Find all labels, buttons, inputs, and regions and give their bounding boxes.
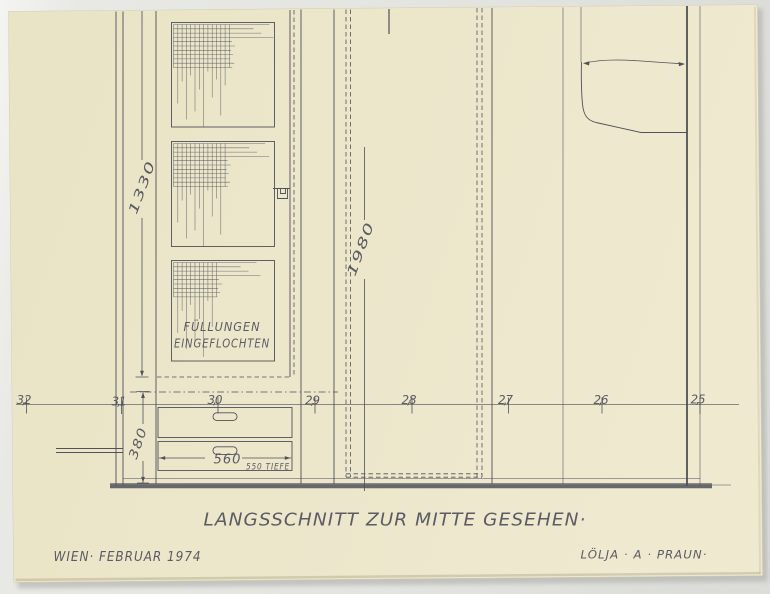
paper-group bbox=[8, 5, 767, 589]
axis-label-2-5: 2,5 bbox=[691, 393, 707, 407]
axis-label-3-2: 3,2 bbox=[17, 393, 33, 407]
axis-label-3-1: 3,1 bbox=[112, 395, 128, 409]
depth-note-label: 550 TIEFE bbox=[246, 463, 290, 473]
axis-label-2-7: 2,7 bbox=[498, 393, 514, 407]
paper-sheet bbox=[8, 5, 762, 583]
axis-label-2-8: 2,8 bbox=[402, 393, 418, 407]
scan-background: 1330 1980 380 560 550 TIEFE FÜLLUNGEN EI… bbox=[0, 0, 770, 594]
axis-label-2-6: 2,6 bbox=[594, 393, 610, 407]
place-date: WIEN· FEBRUAR 1974 bbox=[54, 550, 202, 565]
dimension-label-560: 560 bbox=[214, 453, 242, 468]
axis-label-3-0: 3,0 bbox=[208, 393, 224, 407]
signature: LÖLJA · A · PRAUN· bbox=[581, 546, 708, 562]
panel-note-line1: FÜLLUNGEN bbox=[184, 318, 261, 334]
panel-note-line2: EINGEFLOCHTEN bbox=[174, 337, 270, 351]
axis-label-2-9: 2,9 bbox=[305, 394, 321, 408]
drawing-sheet-svg: 1330 1980 380 560 550 TIEFE FÜLLUNGEN EI… bbox=[0, 0, 770, 594]
drawing-title: LANGSSCHNITT ZUR MITTE GESEHEN· bbox=[204, 511, 587, 531]
